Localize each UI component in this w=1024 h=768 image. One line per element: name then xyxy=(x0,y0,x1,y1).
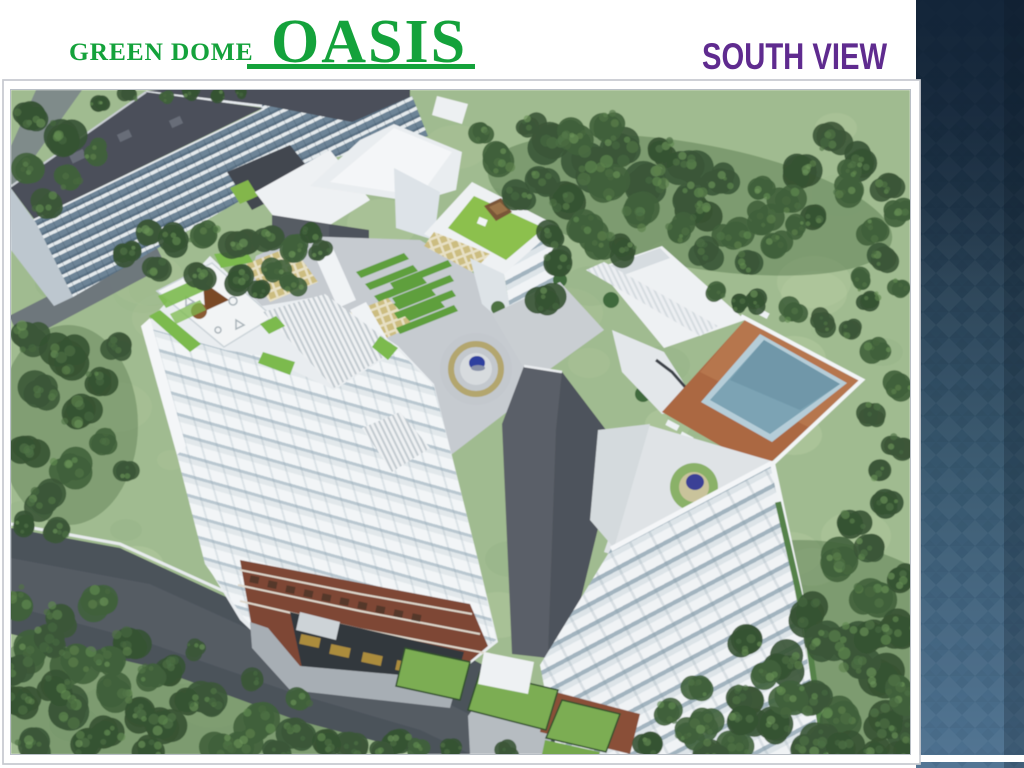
svg-text:SOUTH VIEW: SOUTH VIEW xyxy=(702,37,888,78)
svg-text:GREEN DOME: GREEN DOME xyxy=(69,37,253,66)
